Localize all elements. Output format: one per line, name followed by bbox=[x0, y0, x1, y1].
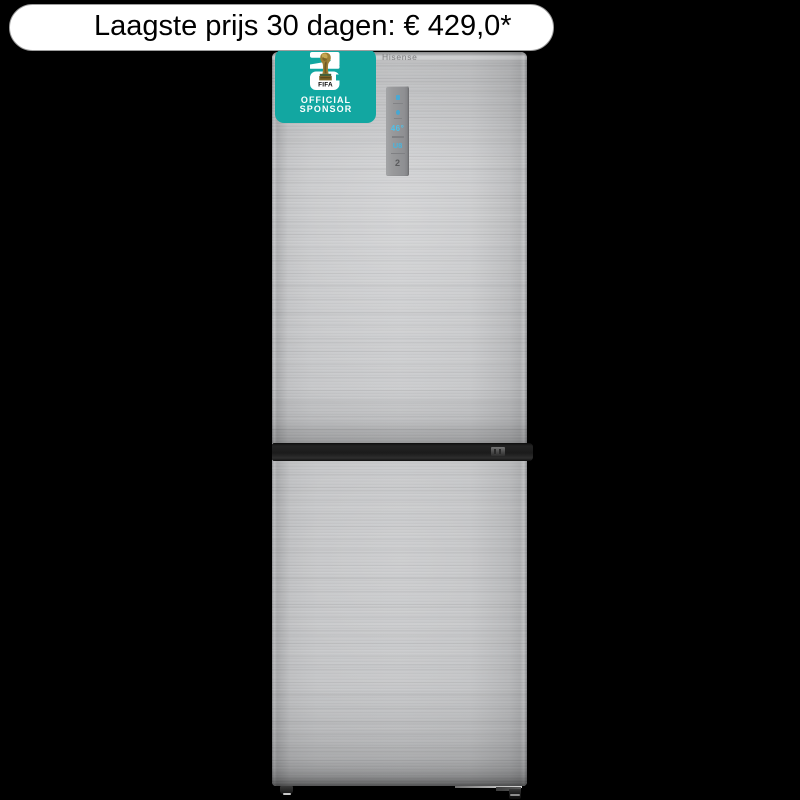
svg-text:FIFA: FIFA bbox=[318, 81, 333, 88]
